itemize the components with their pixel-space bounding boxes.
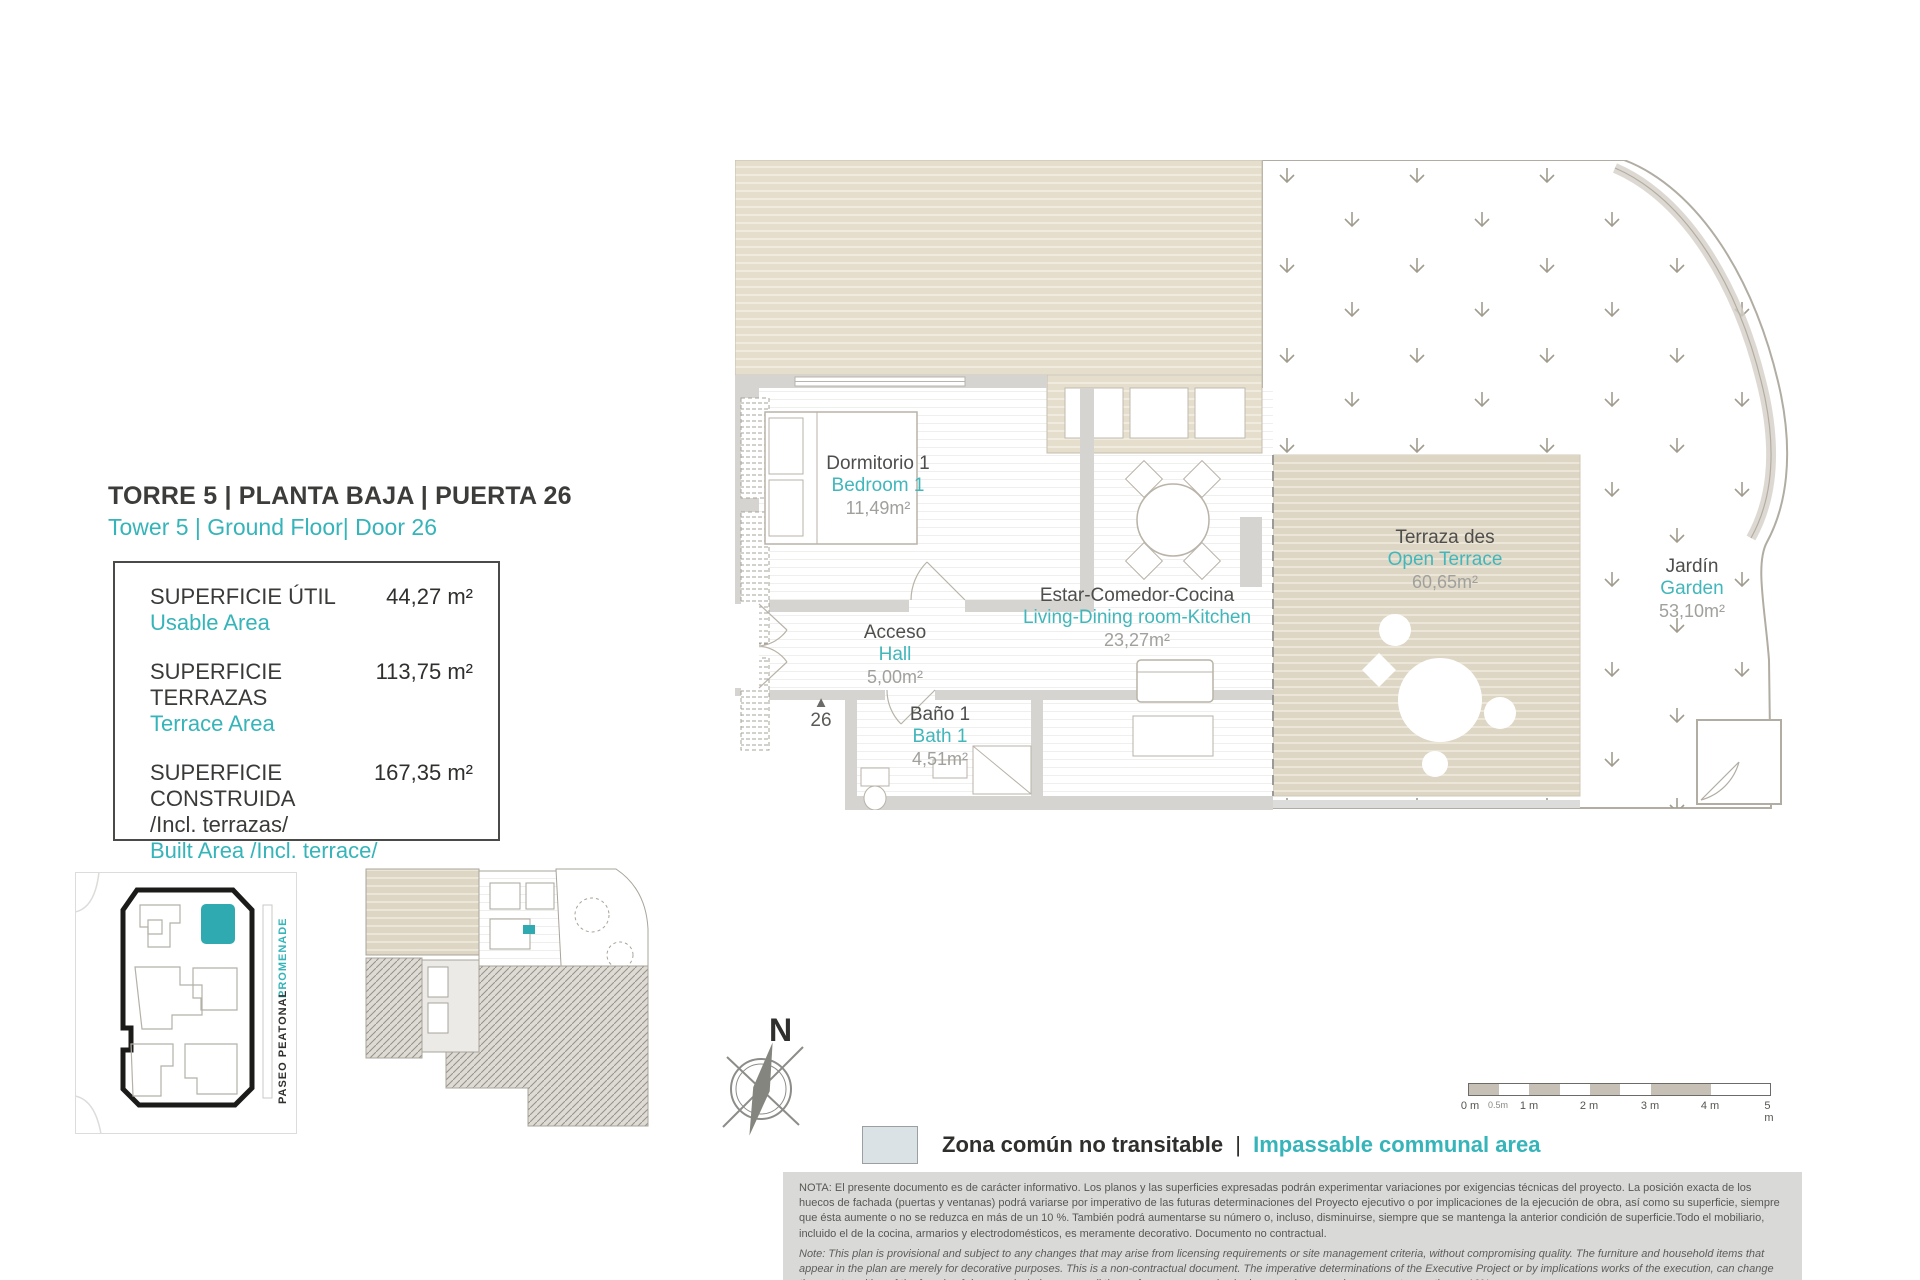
terrace-table-small — [1379, 614, 1411, 646]
area-value: 167,35 m² — [374, 760, 473, 786]
surface-areas-box: SUPERFICIE ÚTIL 44,27 m² Usable Area SUP… — [113, 561, 500, 841]
plan-sheet: TORRE 5 | PLANTA BAJA | PUERTA 26 Tower … — [0, 0, 1920, 1280]
dining-table — [1137, 484, 1209, 556]
scale-tick: 4 m — [1701, 1100, 1719, 1112]
room-label-bath: Baño 1 Bath 1 4,51m² — [910, 704, 970, 770]
north-label: N — [769, 1012, 792, 1048]
highlighted-tower — [201, 904, 235, 944]
disclaimer-panel: NOTA: El presente documento es de caráct… — [783, 1172, 1802, 1280]
room-area: 11,49m² — [826, 498, 929, 519]
room-name-en: Bedroom 1 — [826, 475, 929, 497]
paseo-peatonal-label: PASEO PEATONAL — [277, 990, 289, 1104]
room-area: 60,65m² — [1388, 572, 1503, 593]
terrace-seat — [1422, 751, 1448, 777]
disclaimer-en: Note: This plan is provisional and subje… — [799, 1247, 1786, 1280]
area-label-es: SUPERFICIE TERRAZAS — [150, 659, 376, 711]
floor-key-plan — [320, 863, 652, 1135]
toilet — [861, 768, 889, 786]
room-label-bedroom: Dormitorio 1 Bedroom 1 11,49m² — [826, 453, 929, 519]
entrance-arrow-icon: ▲ — [806, 695, 836, 710]
scale-tick: 3 m — [1641, 1100, 1659, 1112]
room-area: 4,51m² — [910, 749, 970, 770]
entrance-door-number: 26 — [806, 710, 836, 732]
room-name-en: Open Terrace — [1388, 549, 1503, 571]
scale-tick: 2 m — [1580, 1100, 1598, 1112]
page-title: TORRE 5 | PLANTA BAJA | PUERTA 26 — [108, 482, 572, 511]
room-label-hall: Acceso Hall 5,00m² — [864, 622, 926, 688]
area-value: 44,27 m² — [386, 584, 473, 610]
area-row-usable: SUPERFICIE ÚTIL 44,27 m² Usable Area — [150, 584, 473, 636]
north-compass: N — [715, 1005, 815, 1140]
area-label-es: SUPERFICIE ÚTIL — [150, 584, 336, 610]
key-plan-unit-marker — [523, 925, 535, 934]
area-label-en: Usable Area — [150, 610, 473, 636]
page-subtitle: Tower 5 | Ground Floor| Door 26 — [108, 514, 437, 541]
area-row-terrace: SUPERFICIE TERRAZAS 113,75 m² Terrace Ar… — [150, 659, 473, 737]
terrace-table-large — [1398, 658, 1482, 742]
room-name-en: Hall — [864, 644, 926, 666]
area-label-es: SUPERFICIE CONSTRUIDA — [150, 760, 374, 812]
area-value: 113,75 m² — [376, 659, 473, 685]
promenade-label: PROMENADE — [277, 917, 289, 998]
room-name-es: Acceso — [864, 622, 926, 644]
scale-tick: 5 m — [1764, 1100, 1773, 1124]
bedroom-window — [795, 377, 965, 386]
room-label-garden: Jardín Garden 53,10m² — [1659, 556, 1725, 622]
room-area: 23,27m² — [1023, 630, 1251, 651]
site-key-plan: PROMENADE PASEO PEATONAL — [75, 872, 297, 1134]
legend: Zona común no transitable | Impassable c… — [862, 1126, 1540, 1164]
area-label-en: Terrace Area — [150, 711, 473, 737]
room-name-es: Jardín — [1659, 556, 1725, 578]
room-area: 53,10m² — [1659, 601, 1725, 622]
legend-text: Zona común no transitable | Impassable c… — [942, 1132, 1540, 1158]
sofa — [1137, 660, 1213, 702]
room-name-es: Terraza des — [1388, 527, 1503, 549]
room-name-es: Estar-Comedor-Cocina — [1023, 585, 1251, 607]
legend-swatch — [862, 1126, 918, 1164]
scale-tick: 0.5m — [1488, 1100, 1508, 1110]
terrace-seat — [1484, 697, 1516, 729]
area-row-built: SUPERFICIE CONSTRUIDA 167,35 m² /Incl. t… — [150, 760, 473, 864]
key-plan-shapes — [366, 869, 648, 1126]
scale-bar-segments — [1468, 1083, 1771, 1096]
room-name-es: Dormitorio 1 — [826, 453, 929, 475]
room-label-living: Estar-Comedor-Cocina Living-Dining room-… — [1023, 585, 1251, 651]
room-label-terrace: Terraza des Open Terrace 60,65m² — [1388, 527, 1503, 593]
garden-structure — [1697, 720, 1781, 804]
legend-label-en: Impassable communal area — [1253, 1132, 1540, 1157]
disclaimer-es: NOTA: El presente documento es de caráct… — [799, 1181, 1786, 1242]
scale-tick: 1 m — [1520, 1100, 1538, 1112]
area-sublabel-es: /Incl. terrazas/ — [150, 812, 473, 838]
terrace-deck — [1273, 455, 1580, 796]
legend-separator: | — [1229, 1132, 1247, 1157]
compass-needle — [742, 1040, 782, 1137]
room-name-en: Living-Dining room-Kitchen — [1023, 607, 1251, 629]
room-name-es: Baño 1 — [910, 704, 970, 726]
room-name-en: Garden — [1659, 578, 1725, 600]
area-label-en: Built Area /Incl. terrace/ — [150, 838, 473, 864]
room-name-en: Bath 1 — [910, 726, 970, 748]
promenade-strip — [263, 905, 272, 1098]
room-area: 5,00m² — [864, 667, 926, 688]
legend-label-es: Zona común no transitable — [942, 1132, 1223, 1157]
entrance-marker: ▲ 26 — [806, 695, 836, 732]
scale-tick: 0 m — [1461, 1100, 1479, 1112]
scale-bar: 0 m 0.5m 1 m 2 m 3 m 4 m 5 m — [1468, 1083, 1778, 1117]
